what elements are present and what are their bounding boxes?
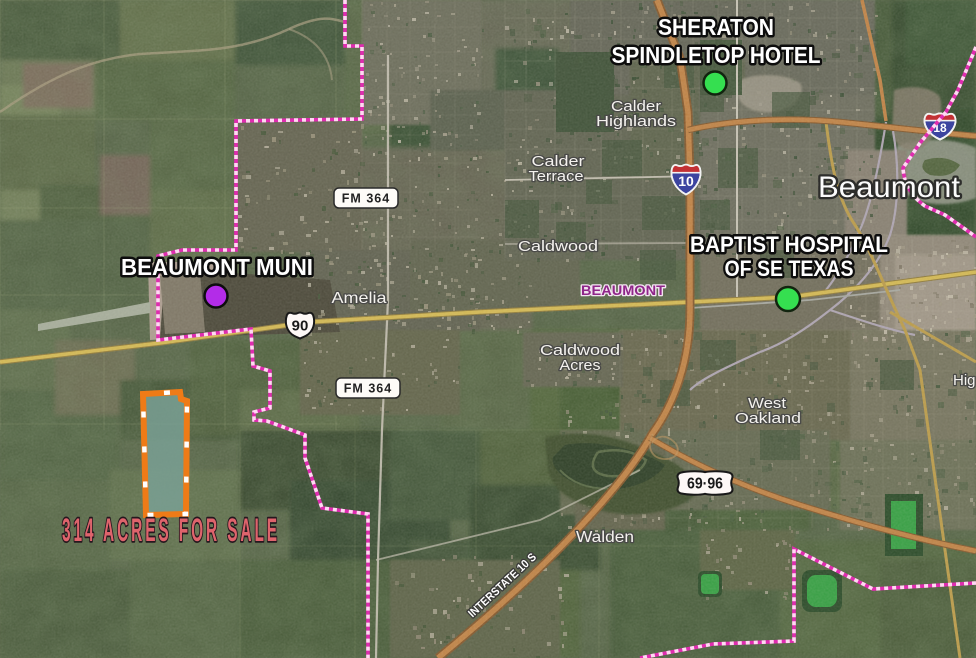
svg-text:314 ACRES FOR SALE: 314 ACRES FOR SALE [62,512,280,548]
svg-text:SPINDLETOP HOTEL: SPINDLETOP HOTEL [612,42,821,68]
svg-text:OF SE TEXAS: OF SE TEXAS [725,256,854,281]
svg-text:Beaumont: Beaumont [818,171,961,204]
svg-text:BEAUMONT: BEAUMONT [581,283,666,298]
svg-text:69·96: 69·96 [687,475,723,492]
svg-text:Oakland: Oakland [735,410,801,427]
svg-text:Highlands: Highlands [596,113,676,130]
svg-text:BAPTIST HOSPITAL: BAPTIST HOSPITAL [690,232,888,257]
svg-text:Walden: Walden [576,529,634,546]
svg-text:10: 10 [678,173,694,189]
svg-text:Acres: Acres [560,357,601,374]
svg-text:Hig: Hig [953,372,976,389]
svg-text:FM 364: FM 364 [342,192,390,206]
svg-text:SHERATON: SHERATON [658,14,774,40]
svg-text:Terrace: Terrace [529,168,584,185]
svg-text:Caldwood: Caldwood [518,238,598,255]
svg-text:Amelia: Amelia [332,290,387,307]
svg-text:BEAUMONT MUNI: BEAUMONT MUNI [121,254,313,280]
svg-text:FM 364: FM 364 [344,382,392,396]
svg-text:90: 90 [292,317,309,334]
